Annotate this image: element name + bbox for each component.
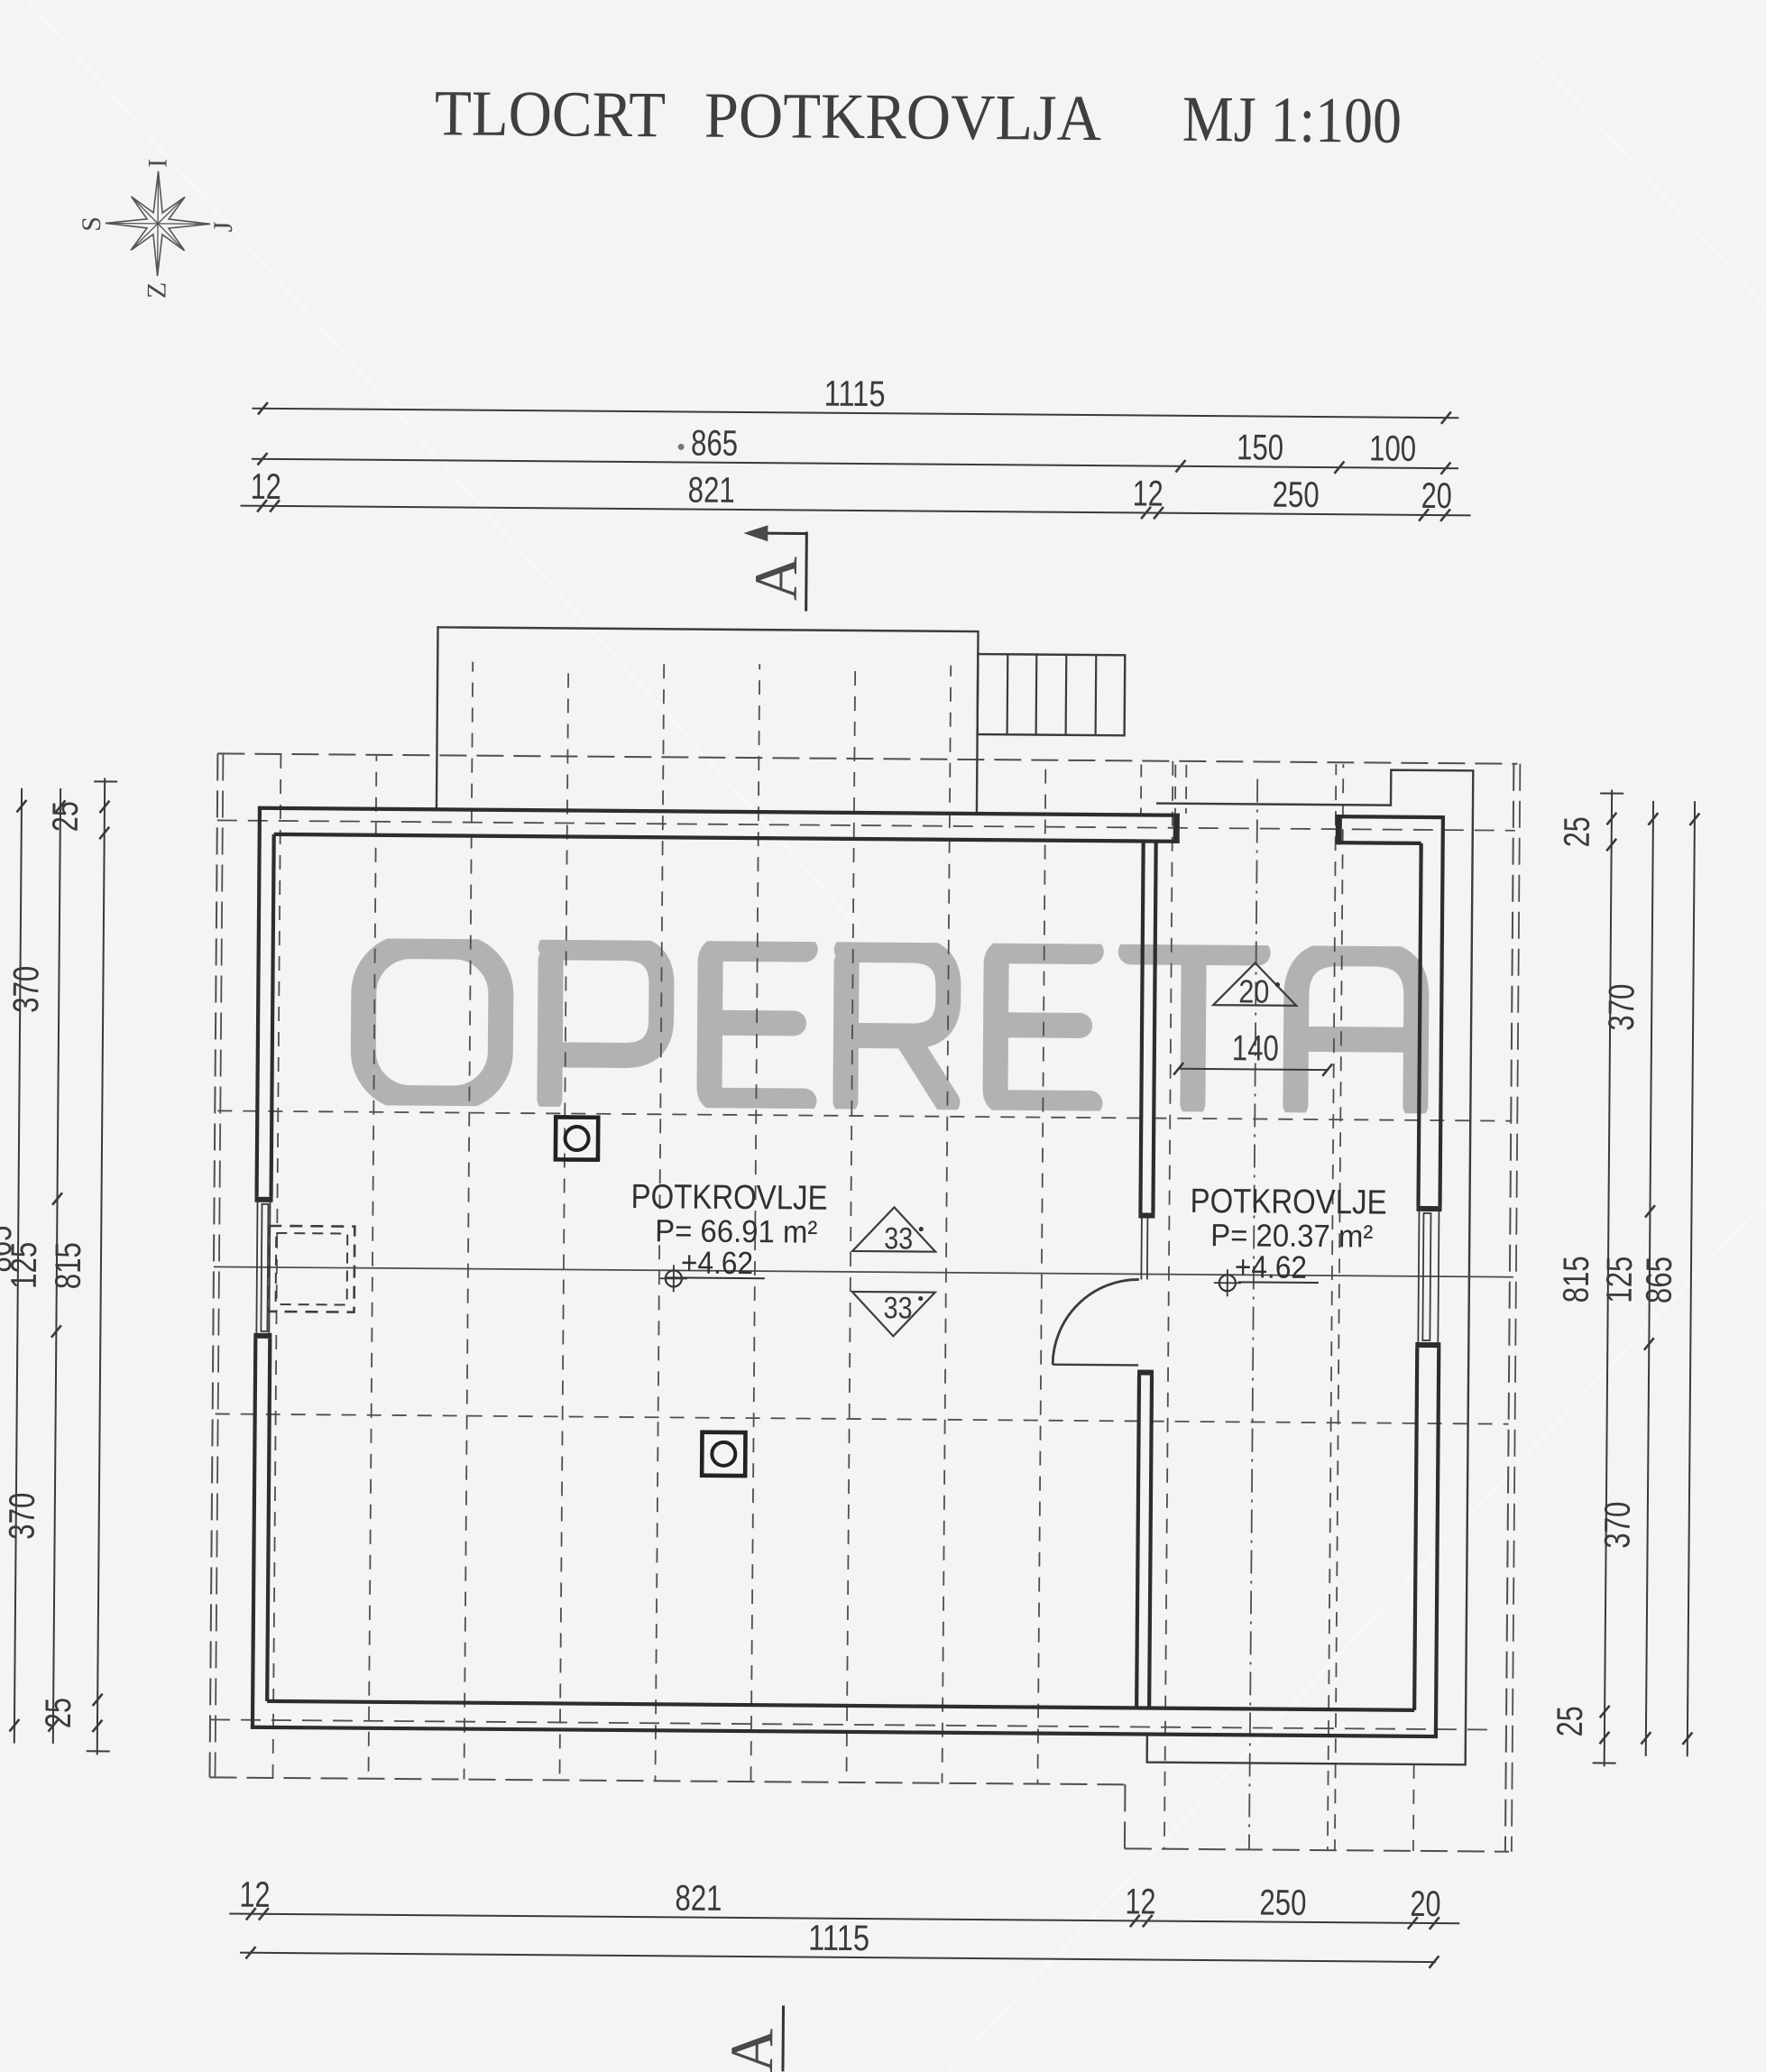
svg-text:250: 250	[1259, 1883, 1306, 1923]
svg-text:1115: 1115	[823, 374, 885, 415]
svg-text:S: S	[77, 216, 106, 232]
svg-text:1115: 1115	[808, 1919, 869, 1959]
svg-text:+4.62: +4.62	[1235, 1249, 1307, 1285]
svg-text:815: 815	[1557, 1256, 1596, 1303]
svg-text:A: A	[741, 556, 810, 601]
svg-text:865: 865	[1640, 1257, 1679, 1303]
svg-text:I: I	[143, 159, 173, 168]
svg-text:33: 33	[883, 1291, 912, 1325]
svg-text:TLOCRT: TLOCRT	[435, 77, 667, 151]
svg-text:370: 370	[1602, 983, 1642, 1030]
svg-text:250: 250	[1273, 475, 1320, 515]
svg-text:20: 20	[1238, 972, 1269, 1009]
svg-text:POTKROVLJE: POTKROVLJE	[1190, 1183, 1386, 1222]
svg-text:20: 20	[1410, 1884, 1440, 1924]
svg-text:140: 140	[1232, 1028, 1279, 1068]
svg-text:Z: Z	[142, 282, 171, 299]
svg-text:370: 370	[6, 966, 46, 1013]
svg-text:12: 12	[1125, 1882, 1155, 1921]
svg-text:+4.62: +4.62	[681, 1245, 753, 1281]
svg-text:12: 12	[239, 1875, 270, 1915]
svg-text:100: 100	[1369, 428, 1416, 468]
svg-text:370: 370	[1598, 1501, 1638, 1548]
svg-text:821: 821	[688, 471, 735, 511]
svg-text:12: 12	[251, 467, 281, 507]
svg-text:20: 20	[1421, 476, 1452, 516]
svg-text:821: 821	[675, 1878, 722, 1918]
svg-text:815: 815	[49, 1242, 88, 1289]
svg-text:125: 125	[5, 1242, 44, 1289]
svg-text:25: 25	[39, 1698, 78, 1728]
svg-text:25: 25	[1558, 816, 1597, 847]
svg-text:POTKROVLJA: POTKROVLJA	[704, 79, 1102, 154]
svg-text:25: 25	[1550, 1706, 1590, 1736]
svg-text:125: 125	[1600, 1256, 1640, 1303]
svg-text:12: 12	[1133, 474, 1164, 513]
svg-text:POTKROVLJE: POTKROVLJE	[630, 1178, 827, 1218]
svg-text:865: 865	[691, 424, 738, 464]
svg-text:33: 33	[884, 1221, 913, 1256]
svg-text:J: J	[208, 221, 238, 232]
svg-text:MJ 1:100: MJ 1:100	[1182, 83, 1403, 157]
svg-text:150: 150	[1237, 428, 1283, 467]
svg-text:25: 25	[46, 801, 86, 832]
svg-text:370: 370	[3, 1493, 42, 1540]
svg-text:A: A	[717, 2028, 786, 2072]
svg-text:P= 66.91 m²: P= 66.91 m²	[655, 1213, 817, 1249]
